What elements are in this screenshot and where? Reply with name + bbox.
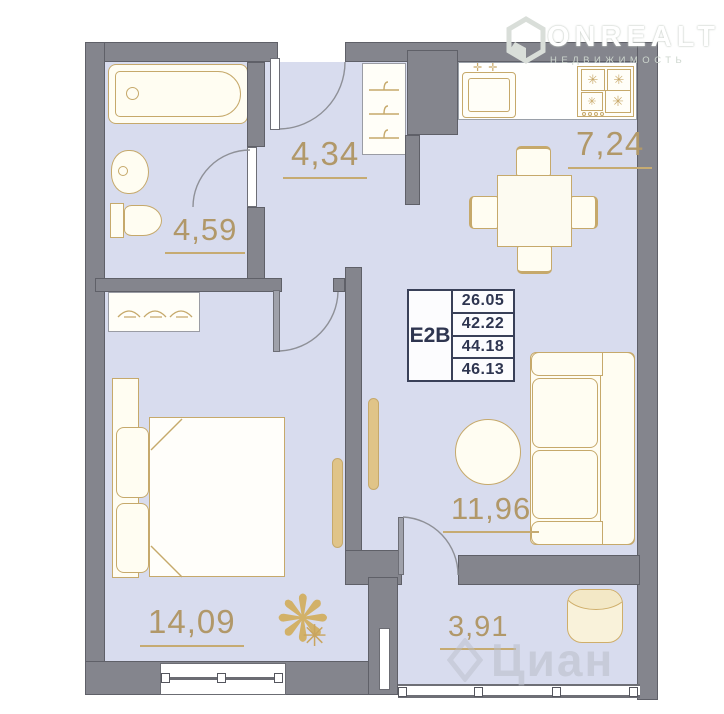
- bathroom-door: [247, 147, 257, 207]
- burner-icon: ✳: [581, 92, 603, 111]
- sofa-cushion: [532, 450, 598, 519]
- stove-icon: ✳ ✳ ✳ ✳: [577, 66, 634, 117]
- dining-chair: [469, 196, 498, 229]
- plan-area-value: 46.13: [453, 359, 513, 380]
- kitchen-sink-icon: [462, 72, 516, 118]
- plant-icon: ✳: [302, 622, 327, 652]
- plan-area-value: 42.22: [453, 314, 513, 337]
- wall: [407, 50, 458, 135]
- bedroom-door: [273, 290, 280, 352]
- room-label-bathroom: 4,59: [165, 212, 245, 254]
- dining-table-icon: [497, 175, 572, 247]
- sofa-cushion: [532, 378, 598, 448]
- burner-icon: ✳: [581, 69, 605, 91]
- pillow: [116, 427, 149, 498]
- wall: [333, 278, 345, 292]
- room-label-bedroom: 14,09: [140, 603, 244, 647]
- wall: [85, 42, 278, 62]
- watermark-text: Циан: [491, 633, 614, 687]
- balcony-side-window: [379, 628, 390, 690]
- wall: [458, 555, 640, 585]
- watermark: Циан: [447, 633, 614, 687]
- hanger-icons: [367, 74, 401, 146]
- plan-info-box: E2B 26.05 42.22 44.18 46.13: [407, 289, 515, 382]
- sofa-armrest: [531, 521, 603, 545]
- pillow: [116, 503, 149, 573]
- dining-chair: [516, 146, 551, 176]
- toilet-bowl-icon: [124, 205, 162, 236]
- wall: [247, 62, 265, 147]
- kitchen-faucet-icon: ✛✛: [473, 61, 503, 74]
- burner-icon: ✳: [605, 90, 631, 113]
- dining-chair: [571, 196, 598, 229]
- entrance-door: [270, 58, 280, 130]
- coffee-table-icon: [455, 419, 521, 485]
- bathtub-icon: [108, 64, 248, 124]
- balcony-door: [398, 517, 404, 575]
- burner-icon: ✳: [607, 69, 631, 91]
- bedroom-wardrobe-icon: [108, 292, 200, 332]
- plan-code: E2B: [409, 291, 453, 380]
- toilet-tank-icon: [110, 203, 124, 238]
- tv-icon: [368, 398, 379, 490]
- tv-icon: [332, 458, 343, 548]
- wall: [85, 42, 105, 695]
- wall: [405, 135, 420, 205]
- room-label-living: 11,96: [443, 491, 539, 533]
- wall: [95, 278, 282, 292]
- washbasin-icon: [111, 150, 149, 194]
- sofa-armrest: [531, 352, 603, 376]
- bed-blanket: [149, 417, 285, 577]
- hallway-wardrobe-icon: [362, 63, 406, 155]
- onrealt-tagline: НЕДВИЖИМОСТЬ: [550, 55, 686, 66]
- room-label-kitchen: 7,24: [568, 125, 652, 169]
- cian-logo-icon: [447, 638, 483, 682]
- floor-plan: ✛✛ ✳ ✳ ✳ ✳ ❋ ✳: [0, 0, 724, 714]
- plan-area-values: 26.05 42.22 44.18 46.13: [453, 291, 513, 380]
- room-label-hallway: 4,34: [283, 135, 367, 179]
- wall: [345, 267, 362, 577]
- plan-area-value: 26.05: [453, 291, 513, 314]
- onrealt-logo-text: ONREALT: [547, 21, 720, 54]
- plan-area-value: 44.18: [453, 337, 513, 360]
- onrealt-logo-icon: [505, 15, 547, 65]
- dining-chair: [517, 246, 552, 274]
- sofa-back: [600, 352, 635, 545]
